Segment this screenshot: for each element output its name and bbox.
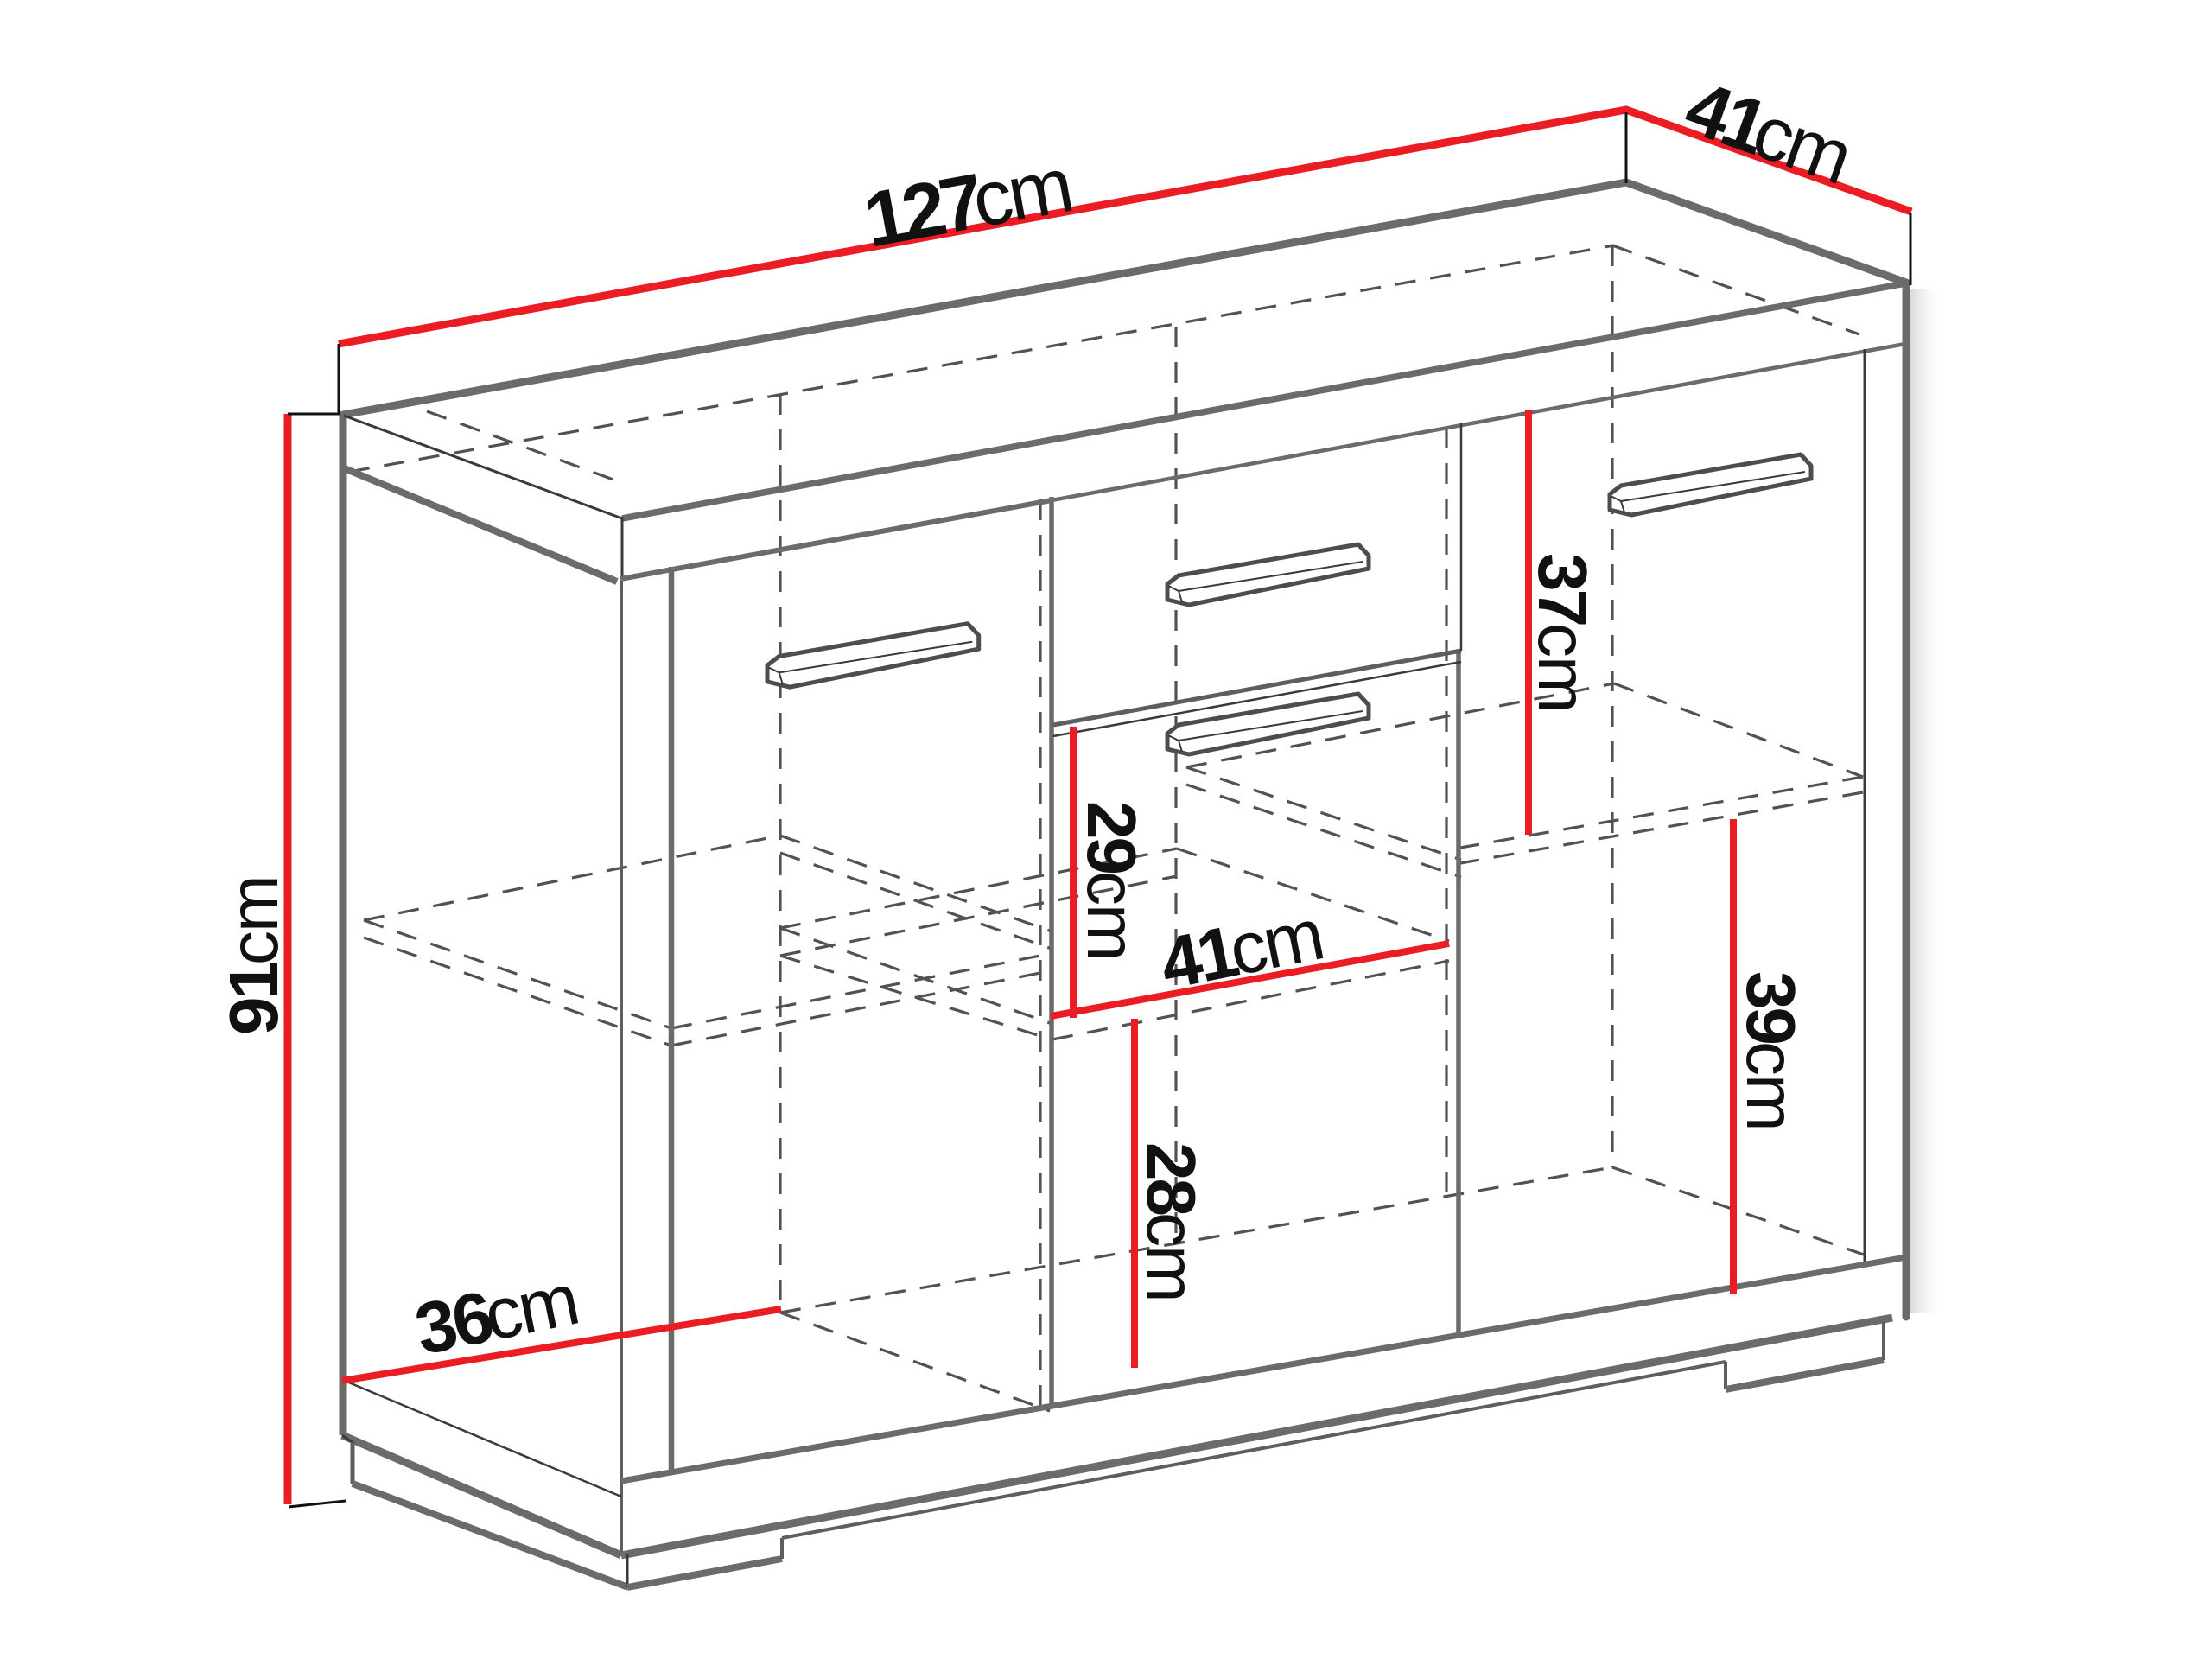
- svg-text:29cm: 29cm: [1073, 801, 1150, 960]
- svg-text:91cm: 91cm: [215, 876, 292, 1035]
- svg-text:37cm: 37cm: [1524, 553, 1601, 712]
- svg-text:28cm: 28cm: [1133, 1142, 1210, 1301]
- svg-text:39cm: 39cm: [1732, 971, 1809, 1130]
